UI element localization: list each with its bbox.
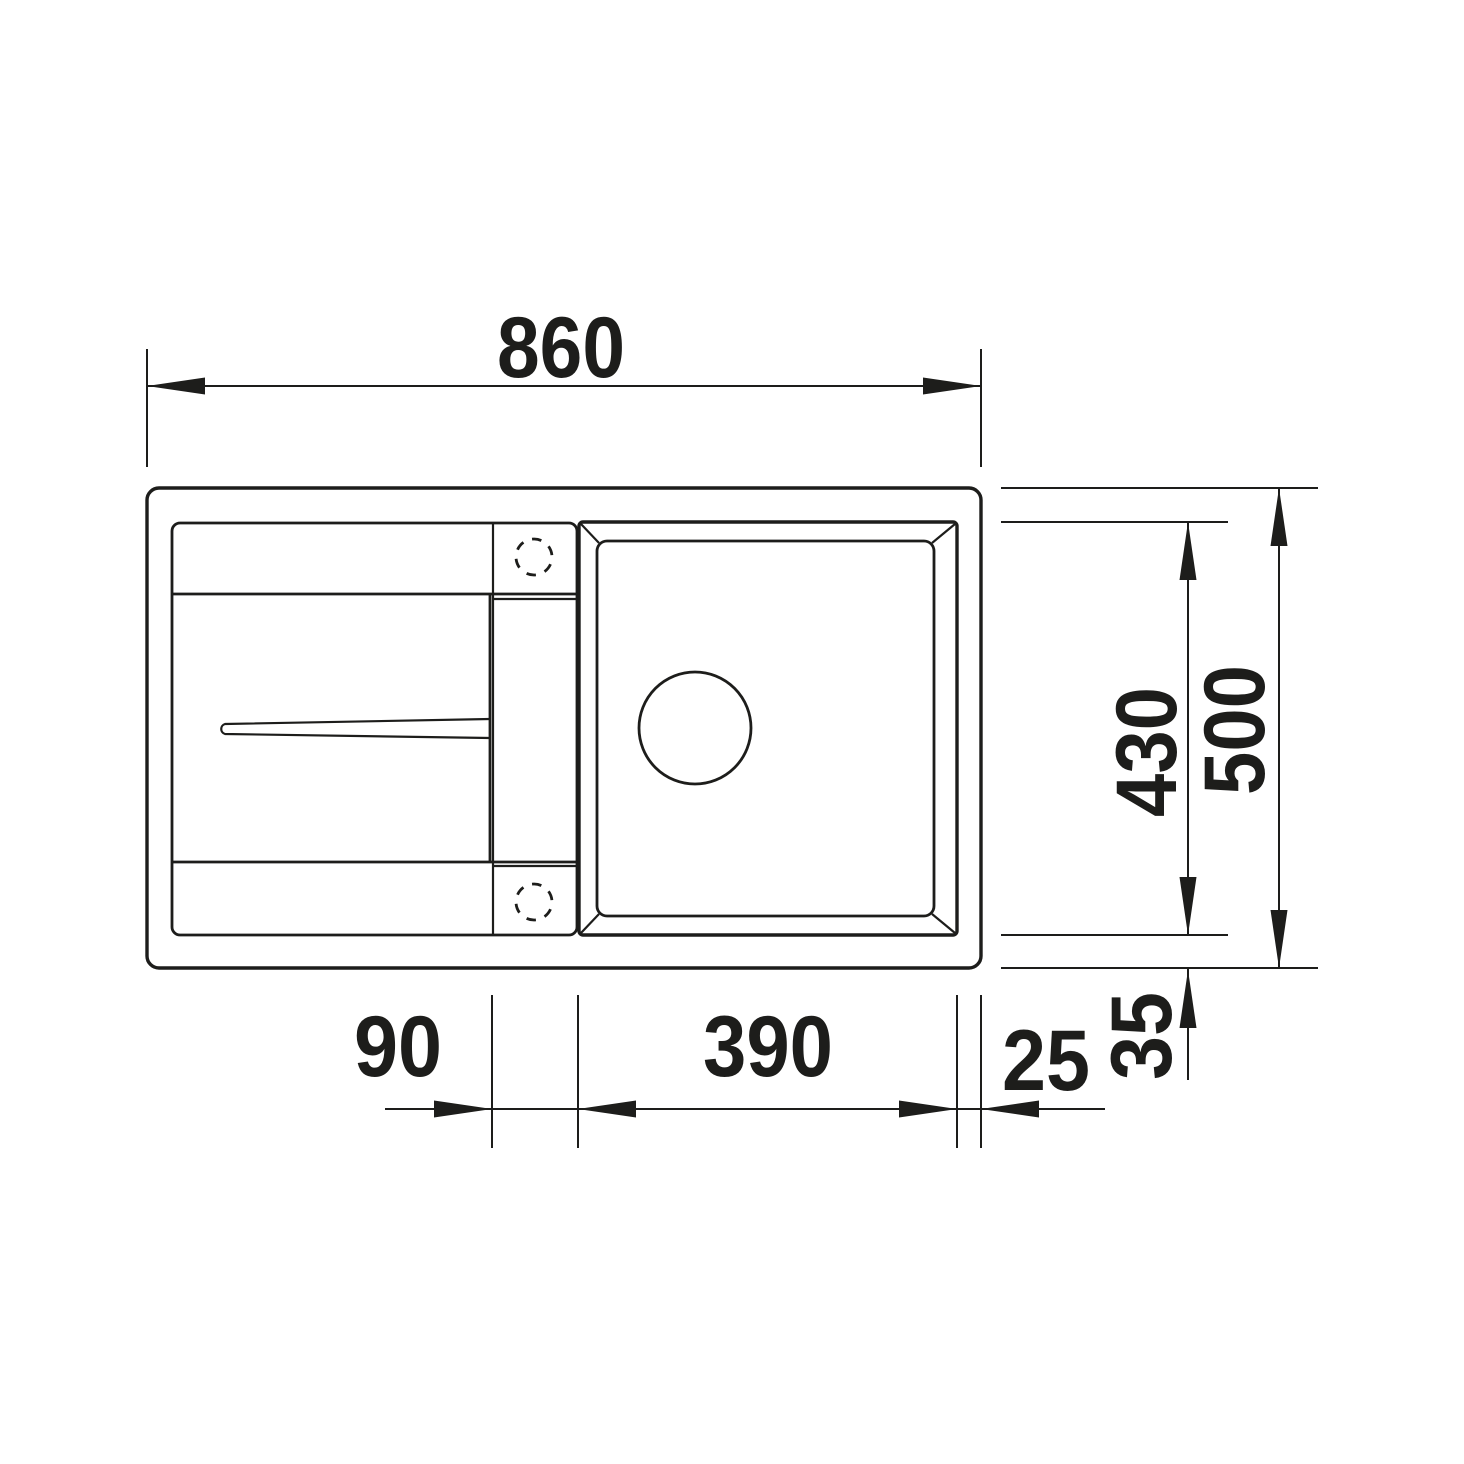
dim-90-arrow-right xyxy=(434,1101,492,1118)
bowl-bevel-bottom-right xyxy=(932,914,955,933)
drainboard-groove xyxy=(221,719,490,738)
bowl-bevel-top-left xyxy=(581,524,599,543)
dim-430-arrow-top xyxy=(1180,522,1197,580)
dim-500-label: 500 xyxy=(1187,665,1283,795)
dim-rim-right: 25 xyxy=(981,1013,1090,1118)
drainboard xyxy=(172,523,577,935)
dim-bowl-width: 390 xyxy=(703,999,957,1118)
dim-90-label: 90 xyxy=(354,999,442,1095)
sink-body xyxy=(147,488,981,968)
tap-hole-bottom-icon xyxy=(510,878,558,926)
dim-430-label-group: 430 xyxy=(1099,687,1195,817)
dim-90-arrow-left xyxy=(578,1101,636,1118)
tap-hole-top-icon xyxy=(510,533,558,581)
dim-35-label-group: 35 xyxy=(1094,992,1190,1080)
dim-390-arrow-right xyxy=(899,1101,957,1118)
bowl-bevel-top-right xyxy=(932,524,955,543)
dim-390-label: 390 xyxy=(703,999,833,1095)
dim-35-label: 35 xyxy=(1094,992,1190,1080)
dim-430-arrow-bottom xyxy=(1180,877,1197,935)
dim-rim-bottom: 35 xyxy=(1094,968,1197,1080)
drainboard-outline xyxy=(172,523,577,935)
dim-overall-width: 860 xyxy=(147,300,981,467)
dim-500-arrow-top xyxy=(1271,488,1288,546)
bowl-outer-rim xyxy=(579,522,957,935)
dim-860-label: 860 xyxy=(497,300,625,396)
dim-faucet-ledge-width: 90 xyxy=(354,999,636,1118)
dim-25-label: 25 xyxy=(1002,1013,1090,1109)
bottom-dimensions: 90 390 25 xyxy=(354,995,1105,1148)
bowl xyxy=(579,522,957,935)
drain-hole xyxy=(639,672,751,784)
dim-860-arrow-right xyxy=(923,378,981,395)
dim-500-label-group: 500 xyxy=(1187,665,1283,795)
dim-430-label: 430 xyxy=(1099,687,1195,817)
bowl-inner-wall xyxy=(597,541,934,916)
sink-outer-outline xyxy=(147,488,981,968)
dim-860-arrow-left xyxy=(147,378,205,395)
drawing-canvas: 860 430 500 35 xyxy=(0,0,1464,1464)
sink-technical-drawing: 860 430 500 35 xyxy=(0,0,1464,1464)
dim-500-arrow-bottom xyxy=(1271,910,1288,968)
bowl-bevel-bottom-left xyxy=(581,914,599,933)
